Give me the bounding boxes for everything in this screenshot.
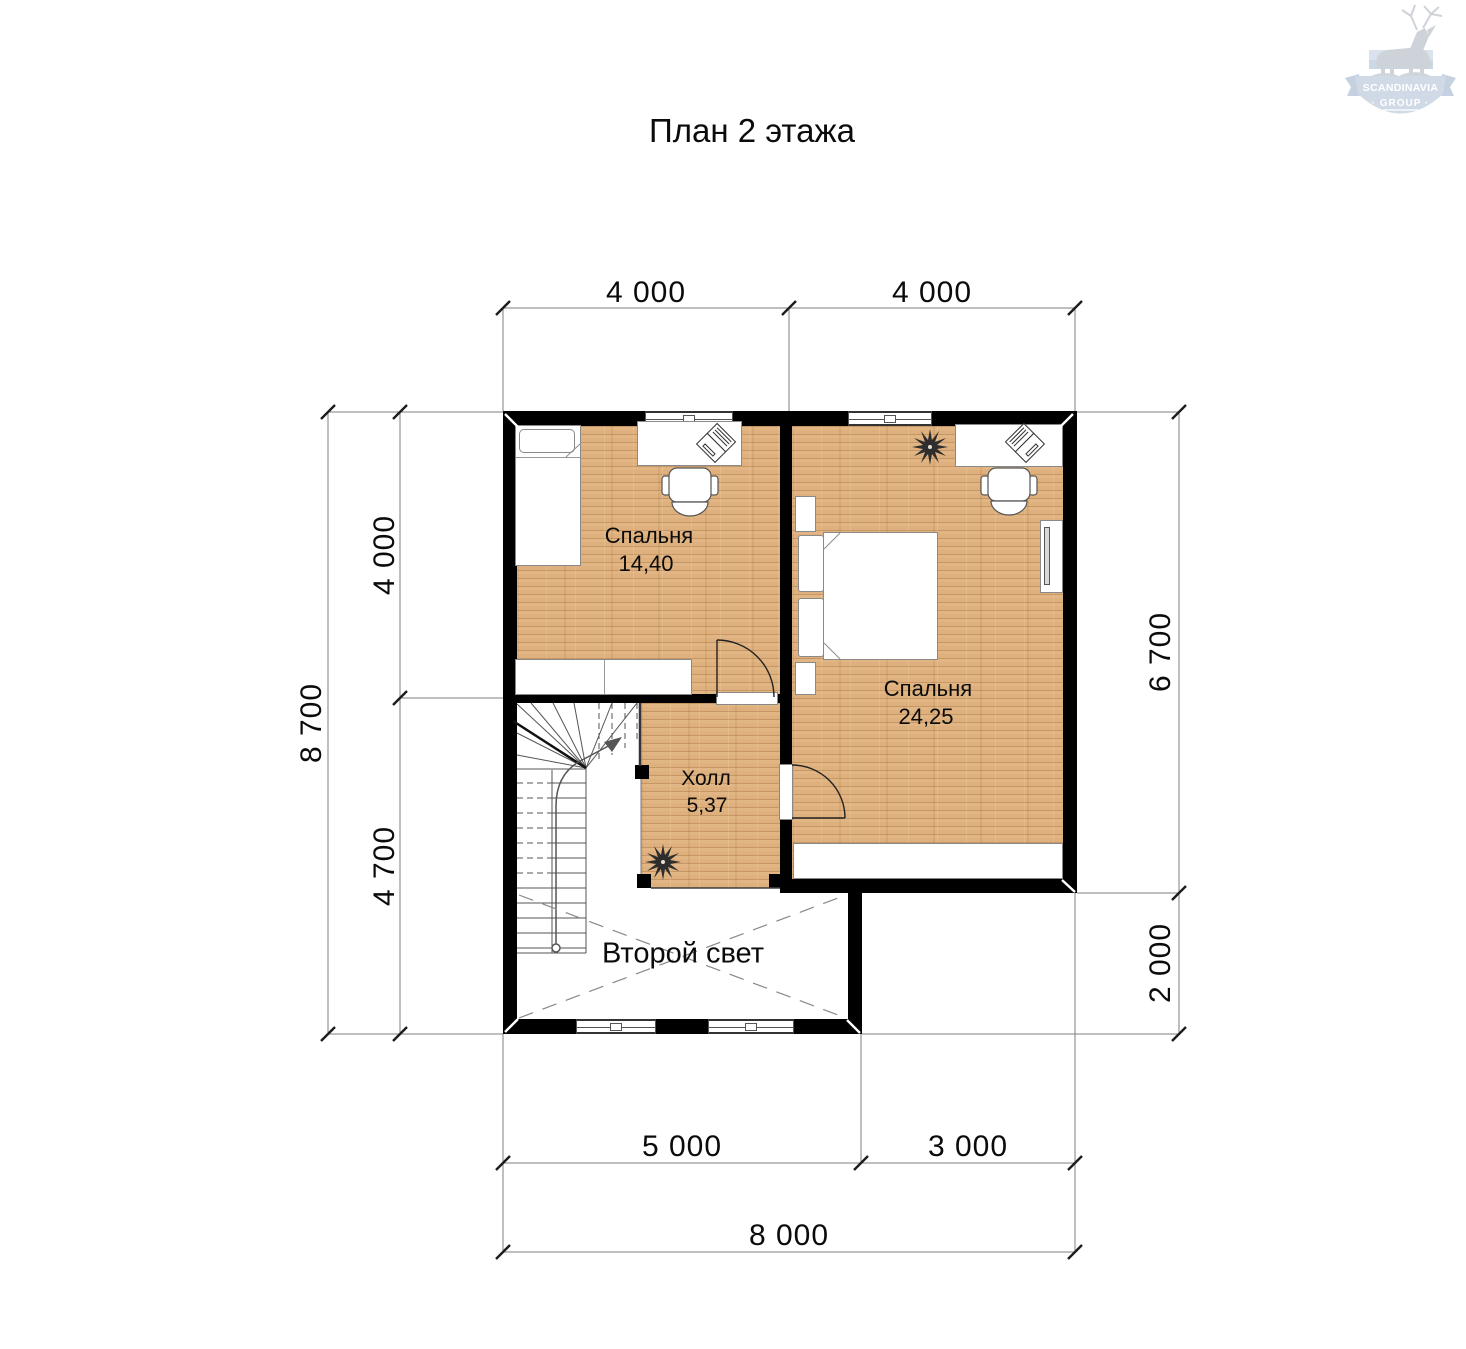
dim-right-lower: 2 000: [1144, 923, 1178, 1003]
walk-line-arrow: [604, 737, 622, 752]
staircase: [517, 703, 637, 953]
window-bedroom2-top: [848, 411, 932, 426]
bedroom2-area-label: 24,25: [898, 704, 953, 730]
bedroom2-name-label: Спальня: [884, 676, 972, 702]
dim-top-left: 4 000: [606, 276, 686, 310]
wall-exterior-bottom: [503, 1019, 862, 1034]
hall-area-label: 5,37: [687, 794, 728, 818]
bedroom2-desk: [955, 424, 1063, 467]
wall-post-hall-left: [637, 874, 651, 888]
logo-text-line1: SCANDINAVIA: [1363, 82, 1439, 94]
bedroom2-pillow-bottom: [798, 598, 824, 657]
bedroom1-name-label: Спальня: [605, 523, 693, 549]
door2-threshold: [779, 764, 793, 820]
stair-walk-line: [552, 737, 622, 952]
dim-bottom-left: 5 000: [642, 1130, 722, 1164]
wall-void-right: [848, 893, 862, 1034]
bedroom2-nightstand-top: [795, 496, 816, 532]
bedroom1-wardrobe: [515, 659, 692, 695]
bedroom1-blanket-line: [516, 457, 580, 458]
dim-bottom-right: 3 000: [928, 1130, 1008, 1164]
bedroom1-desk: [637, 421, 742, 466]
scandinavia-group-logo: SCANDINAVIA · GROUP ·: [1343, 2, 1458, 137]
dim-bottom-total: 8 000: [749, 1219, 829, 1253]
dim-left-inner-top: 4 000: [368, 515, 402, 595]
wall-bedrooms-divider-upper: [780, 411, 792, 765]
window-bottom-left: [576, 1019, 656, 1034]
void-name-label: Второй свет: [602, 938, 764, 971]
bedroom2-double-bed: [823, 532, 938, 660]
bedroom2-tv-screen: [1044, 527, 1050, 585]
dim-left-outer: 8 700: [295, 683, 329, 763]
dim-left-inner-bottom: 4 700: [368, 826, 402, 906]
floor-plan-page: План 2 этажа SCANDINAVIA · GROUP: [0, 0, 1466, 1349]
antlers: [1402, 5, 1442, 30]
wall-post-hall-right: [769, 874, 782, 888]
wall-bedrooms-divider-lower: [780, 818, 792, 879]
page-title: План 2 этажа: [649, 112, 855, 150]
window-bottom-right: [708, 1019, 794, 1034]
door1-threshold: [716, 692, 778, 705]
wall-post-stair-top: [635, 765, 649, 779]
bedroom2-low-cabinet: [793, 843, 1063, 879]
wall-bedroom2-bottom: [780, 879, 1077, 893]
wall-exterior-right: [1063, 411, 1077, 893]
stair-break-line: [513, 721, 586, 768]
dim-right-upper: 6 700: [1144, 612, 1178, 692]
bedroom1-area-label: 14,40: [618, 551, 673, 577]
bedroom1-pillow: [519, 429, 575, 453]
logo-text-line2: · GROUP ·: [1372, 98, 1430, 109]
bedroom2-pillow-top: [798, 535, 824, 592]
hall-name-label: Холл: [681, 767, 731, 791]
deer-logo-icon: SCANDINAVIA · GROUP ·: [1343, 2, 1458, 137]
bedroom2-nightstand-bottom: [795, 662, 816, 695]
wardrobe-divider: [604, 660, 605, 694]
dim-top-right: 4 000: [892, 276, 972, 310]
